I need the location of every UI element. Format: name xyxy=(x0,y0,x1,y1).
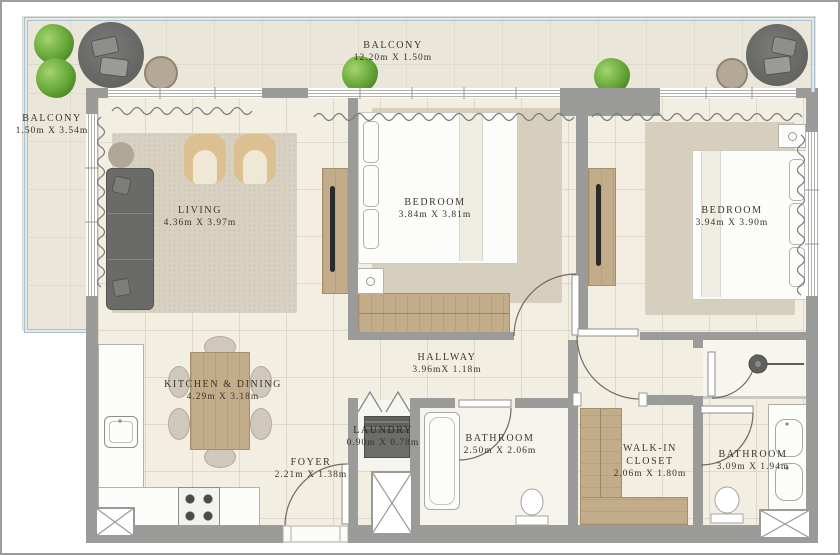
wall xyxy=(86,525,283,543)
wall xyxy=(348,332,514,340)
tv-console xyxy=(588,168,616,286)
cushion xyxy=(763,55,792,75)
window xyxy=(806,132,818,296)
window xyxy=(660,88,796,98)
balcony-left-floor xyxy=(22,93,86,331)
dining-chair xyxy=(250,366,272,398)
dining-chair xyxy=(250,408,272,440)
plant xyxy=(36,58,76,98)
tv xyxy=(330,186,335,272)
vanity-sink xyxy=(775,463,803,501)
wall xyxy=(348,525,818,543)
pillow xyxy=(789,159,805,201)
closet-unit xyxy=(580,497,688,525)
side-table xyxy=(144,56,178,90)
vanity xyxy=(768,404,808,524)
window xyxy=(86,114,98,296)
washing-machine xyxy=(364,416,410,458)
bed xyxy=(358,112,518,264)
plant xyxy=(342,56,378,92)
wall xyxy=(410,398,455,408)
wall xyxy=(348,95,358,340)
sofa xyxy=(106,168,154,310)
wall xyxy=(86,344,98,543)
nightstand xyxy=(778,124,806,148)
shower-partition xyxy=(703,396,806,399)
cushion xyxy=(111,175,132,196)
wall xyxy=(262,88,308,98)
cushion xyxy=(112,278,132,298)
sink-basin xyxy=(109,421,133,443)
pillow xyxy=(789,203,805,245)
wall xyxy=(640,395,693,405)
wall xyxy=(576,95,588,332)
pouf xyxy=(108,142,134,168)
wall xyxy=(693,340,703,348)
dining-chair xyxy=(168,366,190,398)
pillow xyxy=(363,165,379,207)
lamp xyxy=(788,132,797,141)
wall xyxy=(806,88,818,132)
wall xyxy=(693,396,703,543)
round-daybed xyxy=(746,24,808,86)
pillow xyxy=(363,209,379,249)
wardrobe xyxy=(358,293,510,335)
vanity-sink xyxy=(775,419,803,457)
armchair xyxy=(184,134,226,184)
duvet-fold xyxy=(701,151,721,297)
bathtub-basin xyxy=(429,417,455,505)
window xyxy=(108,88,262,98)
side-table xyxy=(716,58,748,90)
cushion xyxy=(99,56,129,77)
dining-chair xyxy=(168,408,190,440)
window xyxy=(308,88,560,98)
pillow xyxy=(363,121,379,163)
cushion xyxy=(91,35,120,57)
armchair-seat xyxy=(243,150,267,184)
shower-floor xyxy=(703,340,806,398)
tv xyxy=(596,184,601,266)
stove xyxy=(178,487,220,527)
nightstand xyxy=(356,268,384,294)
wall xyxy=(515,398,578,408)
kitchen-sink xyxy=(104,416,138,448)
tv-console xyxy=(322,168,350,294)
wall xyxy=(806,296,818,543)
entry-threshold xyxy=(283,526,348,542)
bathtub xyxy=(424,412,460,510)
wall xyxy=(568,340,578,543)
bed xyxy=(692,150,808,300)
wall xyxy=(348,398,358,543)
wall xyxy=(410,406,420,525)
round-daybed xyxy=(78,22,144,88)
wall xyxy=(640,332,806,340)
duvet-fold xyxy=(459,113,483,261)
armchair-seat xyxy=(193,150,217,184)
floor-plan-canvas: BALCONY 12.20m X 1.50m BALCONY 1.50m X 3… xyxy=(0,0,840,555)
lamp xyxy=(366,277,375,286)
wall xyxy=(560,88,660,116)
wall xyxy=(86,88,98,114)
dining-table xyxy=(190,352,250,450)
wall xyxy=(86,296,98,344)
armchair xyxy=(234,134,276,184)
cushion xyxy=(770,36,797,58)
pillow xyxy=(789,247,805,287)
